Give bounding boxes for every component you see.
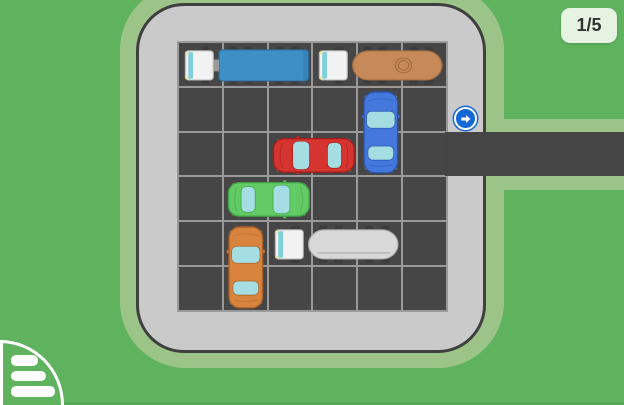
grid-cell <box>179 177 222 220</box>
grid-cell <box>179 222 222 265</box>
vehicle-blue-truck[interactable] <box>182 46 310 85</box>
exit-road <box>445 132 624 176</box>
grid-cell <box>403 177 446 220</box>
level-badge: 1/5 <box>561 8 617 43</box>
grid-cell <box>358 267 401 310</box>
vehicle-red-car[interactable] <box>272 136 356 175</box>
arrow-right-icon <box>459 112 473 126</box>
grid-cell <box>269 267 312 310</box>
grid-cell <box>313 88 356 131</box>
grid-cell <box>358 177 401 220</box>
grid-cell <box>269 88 312 131</box>
vehicle-green-car[interactable] <box>227 180 311 219</box>
grid-cell <box>403 133 446 176</box>
grid-cell <box>179 88 222 131</box>
exit-arrow-sign <box>454 107 477 130</box>
road-grass-band-bottom <box>486 176 624 190</box>
vehicle-orange-car[interactable] <box>227 225 266 309</box>
grid-cell <box>313 177 356 220</box>
vehicle-white-tanker[interactable] <box>272 225 400 264</box>
vehicle-blue-car[interactable] <box>361 91 400 175</box>
road-grass-band-top <box>486 119 624 132</box>
grid-cell <box>313 267 356 310</box>
grid-cell <box>179 133 222 176</box>
grid-cell <box>403 88 446 131</box>
grid-cell <box>403 222 446 265</box>
level-badge-label: 1/5 <box>576 15 601 36</box>
grid-cell <box>179 267 222 310</box>
grid-cell <box>224 133 267 176</box>
grid-cell <box>224 88 267 131</box>
grid-cell <box>403 267 446 310</box>
vehicle-tan-tanker[interactable] <box>316 46 444 85</box>
menu-button[interactable] <box>0 340 64 405</box>
